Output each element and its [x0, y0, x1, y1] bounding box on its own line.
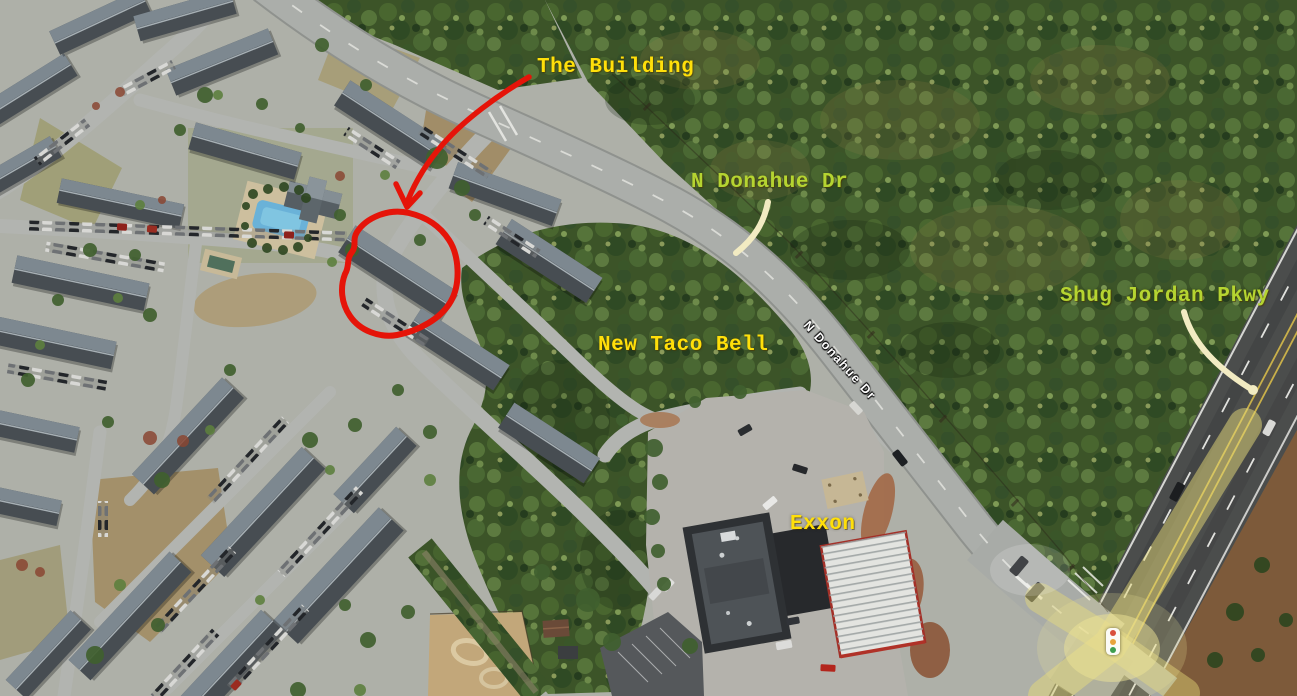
traffic-light-amber	[1110, 639, 1116, 645]
satellite-map[interactable]: The Building N Donahue Dr New Taco Bell …	[0, 0, 1297, 696]
exxon-canopy	[821, 531, 925, 656]
label-the-building: The Building	[537, 57, 694, 78]
label-shug-jordan-pkwy: Shug Jordan Pkwy	[1060, 286, 1270, 307]
label-n-donahue-dr: N Donahue Dr	[691, 172, 848, 193]
traffic-light-green	[1110, 647, 1116, 653]
label-new-taco-bell: New Taco Bell	[598, 335, 768, 356]
traffic-light-icon	[1106, 628, 1120, 655]
label-exxon: Exxon	[790, 514, 856, 535]
traffic-light-red	[1110, 630, 1116, 636]
